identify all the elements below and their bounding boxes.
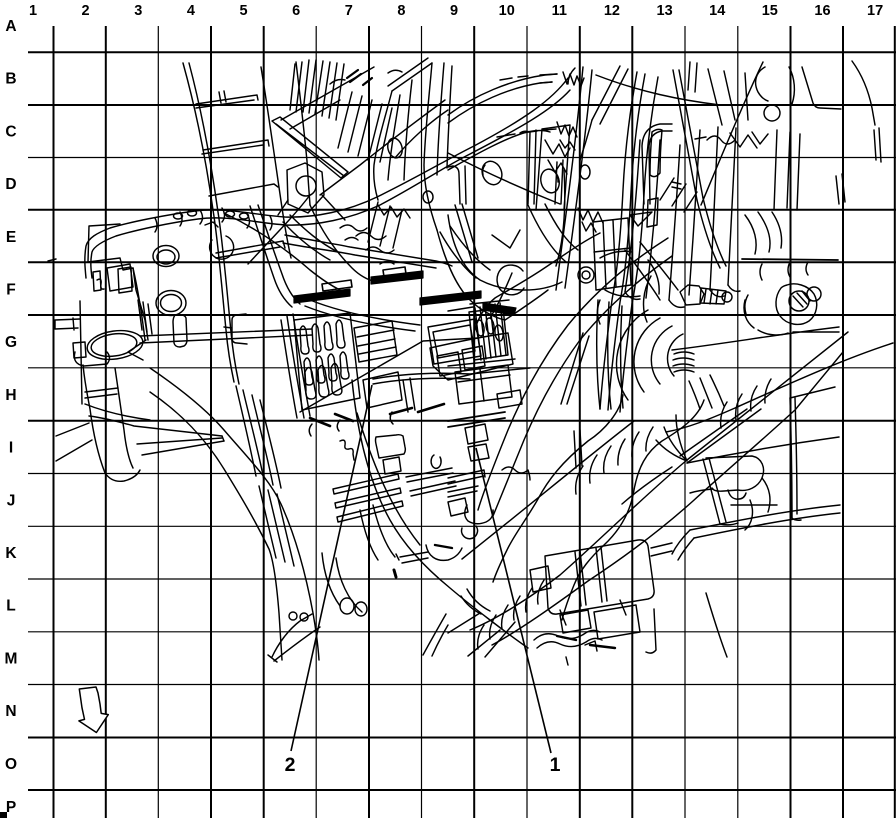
svg-text:8: 8 (397, 3, 405, 19)
svg-text:D: D (5, 176, 16, 193)
svg-text:16: 16 (814, 3, 830, 19)
svg-text:J: J (7, 492, 16, 509)
svg-text:14: 14 (709, 3, 725, 19)
svg-text:2: 2 (82, 3, 90, 19)
svg-text:12: 12 (604, 3, 620, 19)
svg-text:A: A (5, 18, 16, 35)
svg-text:4: 4 (187, 3, 195, 19)
svg-text:L: L (6, 598, 15, 615)
svg-text:F: F (6, 282, 15, 299)
svg-text:1: 1 (550, 754, 561, 776)
svg-text:7: 7 (345, 3, 353, 19)
svg-text:17: 17 (867, 3, 883, 19)
svg-text:K: K (5, 545, 17, 562)
svg-text:I: I (9, 440, 13, 457)
svg-text:E: E (6, 229, 16, 246)
svg-text:M: M (5, 650, 18, 667)
svg-text:1: 1 (29, 3, 37, 19)
svg-text:N: N (5, 703, 16, 720)
svg-text:O: O (5, 756, 17, 773)
svg-text:15: 15 (762, 3, 778, 19)
svg-text:9: 9 (450, 3, 458, 19)
svg-text:5: 5 (239, 3, 247, 19)
svg-text:H: H (5, 387, 16, 404)
svg-text:10: 10 (499, 3, 515, 19)
svg-text:3: 3 (134, 3, 142, 19)
svg-text:P: P (6, 799, 16, 816)
svg-text:B: B (5, 71, 16, 88)
svg-text:C: C (5, 123, 16, 140)
svg-text:6: 6 (292, 3, 300, 19)
svg-text:2: 2 (285, 754, 296, 776)
svg-text:11: 11 (552, 3, 567, 19)
svg-text:G: G (5, 334, 17, 351)
svg-text:13: 13 (657, 3, 673, 19)
